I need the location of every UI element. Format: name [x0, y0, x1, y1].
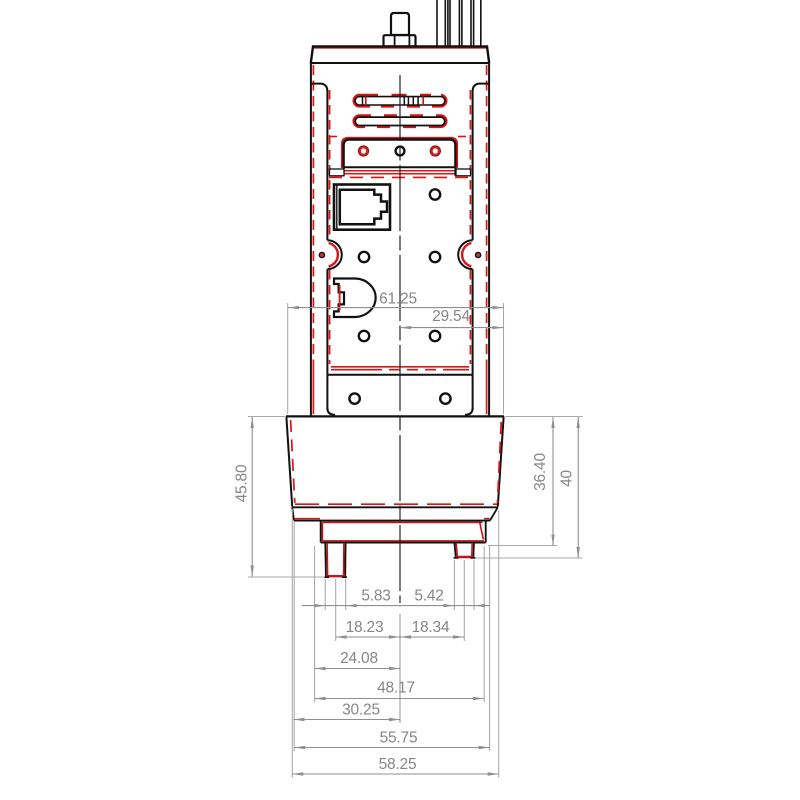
- svg-text:5.83: 5.83: [361, 588, 390, 605]
- svg-text:61.25: 61.25: [379, 291, 417, 308]
- svg-text:55.75: 55.75: [380, 730, 418, 747]
- svg-text:18.23: 18.23: [346, 619, 384, 636]
- svg-text:5.42: 5.42: [414, 588, 443, 605]
- svg-text:30.25: 30.25: [342, 702, 380, 719]
- svg-text:18.34: 18.34: [412, 619, 450, 636]
- svg-text:58.25: 58.25: [379, 756, 417, 773]
- svg-text:48.17: 48.17: [377, 680, 415, 697]
- svg-text:36.40: 36.40: [532, 453, 549, 491]
- svg-text:29.54: 29.54: [432, 308, 470, 325]
- svg-text:24.08: 24.08: [340, 650, 378, 667]
- svg-text:45.80: 45.80: [233, 464, 250, 502]
- svg-text:40: 40: [559, 470, 576, 487]
